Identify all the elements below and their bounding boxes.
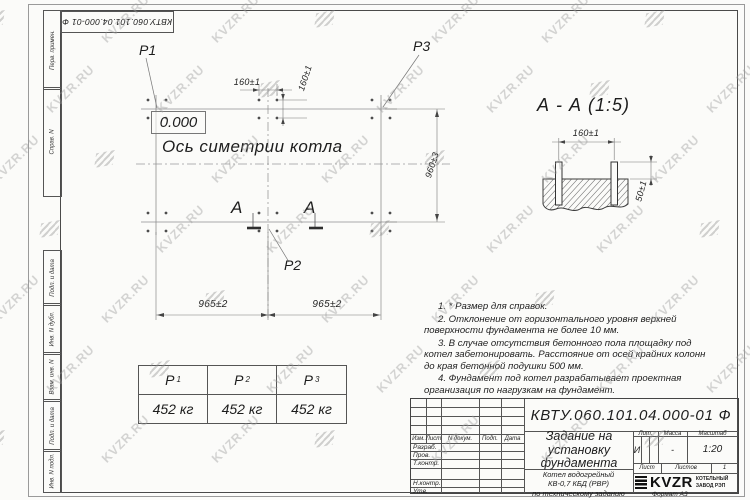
row-razrab: Разраб. [413, 444, 437, 451]
col-list: Лист [426, 434, 441, 443]
col-data: Дата [501, 434, 524, 443]
level-mark: 0.000 [160, 114, 198, 131]
product-description: Котел водогрейный КВ-0,7 КБД (РВР) по те… [525, 470, 632, 498]
margin-label: Подп. и дата [50, 259, 56, 297]
margin-cell-vzam-inv: Взам. инв. N [43, 352, 62, 402]
row-utv: Утв. [413, 488, 428, 495]
format-label: Формат А3 [652, 491, 688, 498]
load-value-p2: 452 кг [208, 395, 277, 424]
scale-value: 1:20 [687, 436, 738, 463]
load-value-p1: 452 кг [139, 395, 208, 424]
note-1: 1. * Размер для справок. [424, 301, 717, 313]
lit-value: И [633, 436, 641, 463]
margin-cell-sprav-n: Справ. N [43, 87, 62, 197]
col-izm: Изм. [411, 434, 426, 443]
load-table: P1 P2 P3 452 кг 452 кг 452 кг [138, 365, 347, 424]
point-label-p2: P2 [284, 257, 301, 273]
margin-cell-podp-data-1: Подп. и дата [43, 250, 62, 306]
col-ndoc: N докум. [441, 434, 479, 443]
kvzr-logo-text: KVZR [650, 475, 693, 490]
note-4: 4. Фундамент под котел разрабатывает про… [424, 373, 717, 396]
row-prov: Пров. [413, 452, 430, 459]
mass-value: - [658, 436, 687, 463]
kvzr-logo-icon [635, 476, 647, 489]
margin-label: Взам. инв. N [50, 360, 56, 395]
company-logo: KVZR КОТЕЛЬНЫЙ ЗАВОД РЭП [635, 474, 736, 491]
section-letter-left: А [231, 198, 242, 218]
drawing-title: Задание на установку фундамента [531, 433, 627, 468]
margin-label: Подп. и дата [50, 407, 56, 445]
section-letter-right: А [304, 198, 315, 218]
product-line-2: КВ-0,7 КБД (РВР) [525, 479, 632, 488]
title-block: КВТУ.060.101.04.000-01 Ф Задание на уста… [410, 398, 739, 494]
section-view-title: А - А (1:5) [537, 95, 630, 116]
sheet-label: Лист [633, 463, 661, 473]
point-label-p3: P3 [413, 38, 430, 54]
margin-cell-inv-podl: Инв. N подл. [43, 449, 62, 493]
note-2: 2. Отклонение от горизонтального уровня … [424, 314, 717, 337]
section-dim-160: 160±1 [563, 128, 609, 138]
margin-label: Справ. N [50, 129, 56, 154]
margin-label: Инв. N дубл. [50, 312, 56, 347]
dim-160-top-horizontal: 160±1 [230, 77, 264, 87]
margin-label: Инв. N подл. [50, 453, 56, 488]
load-table-header-p3: P3 [277, 366, 346, 395]
sheets-value: 1 [711, 463, 738, 473]
watermark-logo-icon [0, 10, 5, 28]
top-doc-number: КВТУ.060.101.04.000-01 Ф [62, 17, 172, 27]
margin-label: Перв. примен. [50, 30, 56, 70]
row-nkontr: Н.контр. [413, 480, 441, 487]
dim-965-bottom-right: 965±2 [310, 299, 344, 310]
note-3: 3. В случае отсутствия бетонного пола пл… [424, 338, 717, 373]
product-line-1: Котел водогрейный [525, 470, 632, 479]
p-label: P [304, 372, 313, 388]
axis-of-symmetry-label: Ось симетрии котла [162, 137, 343, 157]
col-podp: Подп. [479, 434, 501, 443]
technical-notes: 1. * Размер для справок. 2. Отклонение о… [424, 301, 717, 397]
margin-cell-inv-dubl: Инв. N дубл. [43, 303, 62, 355]
level-mark-box: 0.000 [151, 111, 206, 134]
p-label: P [165, 372, 174, 388]
watermark-logo-icon [0, 430, 5, 448]
logo-sub-line2: ЗАВОД РЭП [696, 483, 729, 489]
point-label-p1: P1 [139, 42, 156, 58]
p-label: P [234, 372, 243, 388]
margin-cell-podp-data-2: Подп. и дата [43, 399, 62, 452]
load-table-header-p1: P1 [139, 366, 208, 395]
drawing-sheet: Перв. примен. Справ. N Подп. и дата Инв.… [0, 0, 750, 500]
dim-965-bottom-left: 965±2 [196, 299, 230, 310]
sheets-label: Листов [661, 463, 711, 473]
p-sub: 1 [176, 375, 180, 384]
logo-sub-line1: КОТЕЛЬНЫЙ [696, 476, 729, 482]
load-table-header-p2: P2 [208, 366, 277, 395]
plan-view-drawing [120, 30, 470, 330]
p-sub: 2 [245, 375, 249, 384]
product-line-3: по техническому заданию [525, 489, 632, 498]
doc-number: КВТУ.060.101.04.000-01 Ф [526, 401, 736, 429]
p-sub: 3 [315, 375, 319, 384]
row-tkontr: Т.контр. [413, 460, 439, 467]
kvzr-logo-subtitle: КОТЕЛЬНЫЙ ЗАВОД РЭП [696, 476, 729, 489]
load-value-p3: 452 кг [277, 395, 346, 424]
